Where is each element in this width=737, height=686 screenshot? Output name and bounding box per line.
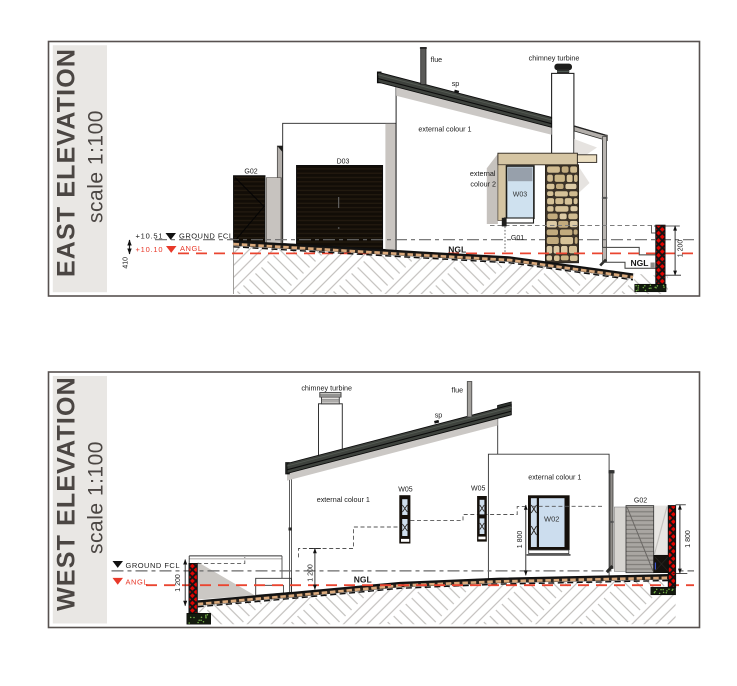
svg-text:1 200: 1 200 (678, 240, 685, 258)
svg-text:colour 2: colour 2 (470, 180, 496, 189)
svg-text:scale 1:100: scale 1:100 (85, 110, 108, 223)
svg-text:ANGL: ANGL (126, 578, 148, 587)
svg-text:GROUND FCL: GROUND FCL (126, 561, 180, 570)
svg-text:external: external (470, 169, 496, 178)
svg-text:NGL: NGL (448, 244, 466, 254)
svg-text:scale 1:100: scale 1:100 (85, 441, 108, 554)
svg-text:+10.51: +10.51 (136, 232, 163, 241)
svg-text:410: 410 (122, 257, 129, 269)
svg-text:1 200: 1 200 (308, 564, 315, 582)
svg-text:EAST ELEVATION: EAST ELEVATION (53, 48, 81, 277)
svg-text:external colour 1: external colour 1 (418, 125, 471, 134)
svg-text:1 800: 1 800 (517, 531, 524, 549)
svg-text:W03: W03 (513, 192, 528, 199)
svg-text:NGL: NGL (354, 575, 372, 585)
svg-text:NGL: NGL (631, 258, 649, 268)
svg-text:ANGL: ANGL (180, 244, 202, 253)
svg-text:W05: W05 (471, 485, 486, 492)
svg-text:+10.10: +10.10 (136, 245, 163, 254)
svg-text:G02: G02 (634, 497, 647, 504)
svg-text:W02: W02 (544, 515, 559, 524)
svg-text:1 800: 1 800 (685, 530, 692, 548)
svg-text:sp: sp (435, 411, 443, 420)
svg-text:G02: G02 (244, 169, 257, 176)
svg-text:WEST ELEVATION: WEST ELEVATION (53, 376, 81, 611)
svg-text:flue: flue (452, 386, 464, 395)
svg-text:G01: G01 (511, 235, 524, 242)
svg-text:flue: flue (431, 55, 443, 64)
svg-text:GROUND FCL: GROUND FCL (179, 232, 233, 241)
svg-text:external colour 1: external colour 1 (528, 473, 581, 482)
svg-text:sp: sp (452, 79, 460, 88)
svg-text:chimney turbine: chimney turbine (529, 54, 580, 63)
svg-text:1 200: 1 200 (175, 574, 182, 592)
svg-text:D03: D03 (337, 159, 350, 166)
svg-text:external colour 1: external colour 1 (317, 495, 370, 504)
svg-text:W05: W05 (398, 487, 413, 494)
svg-text:chimney turbine: chimney turbine (301, 384, 352, 393)
